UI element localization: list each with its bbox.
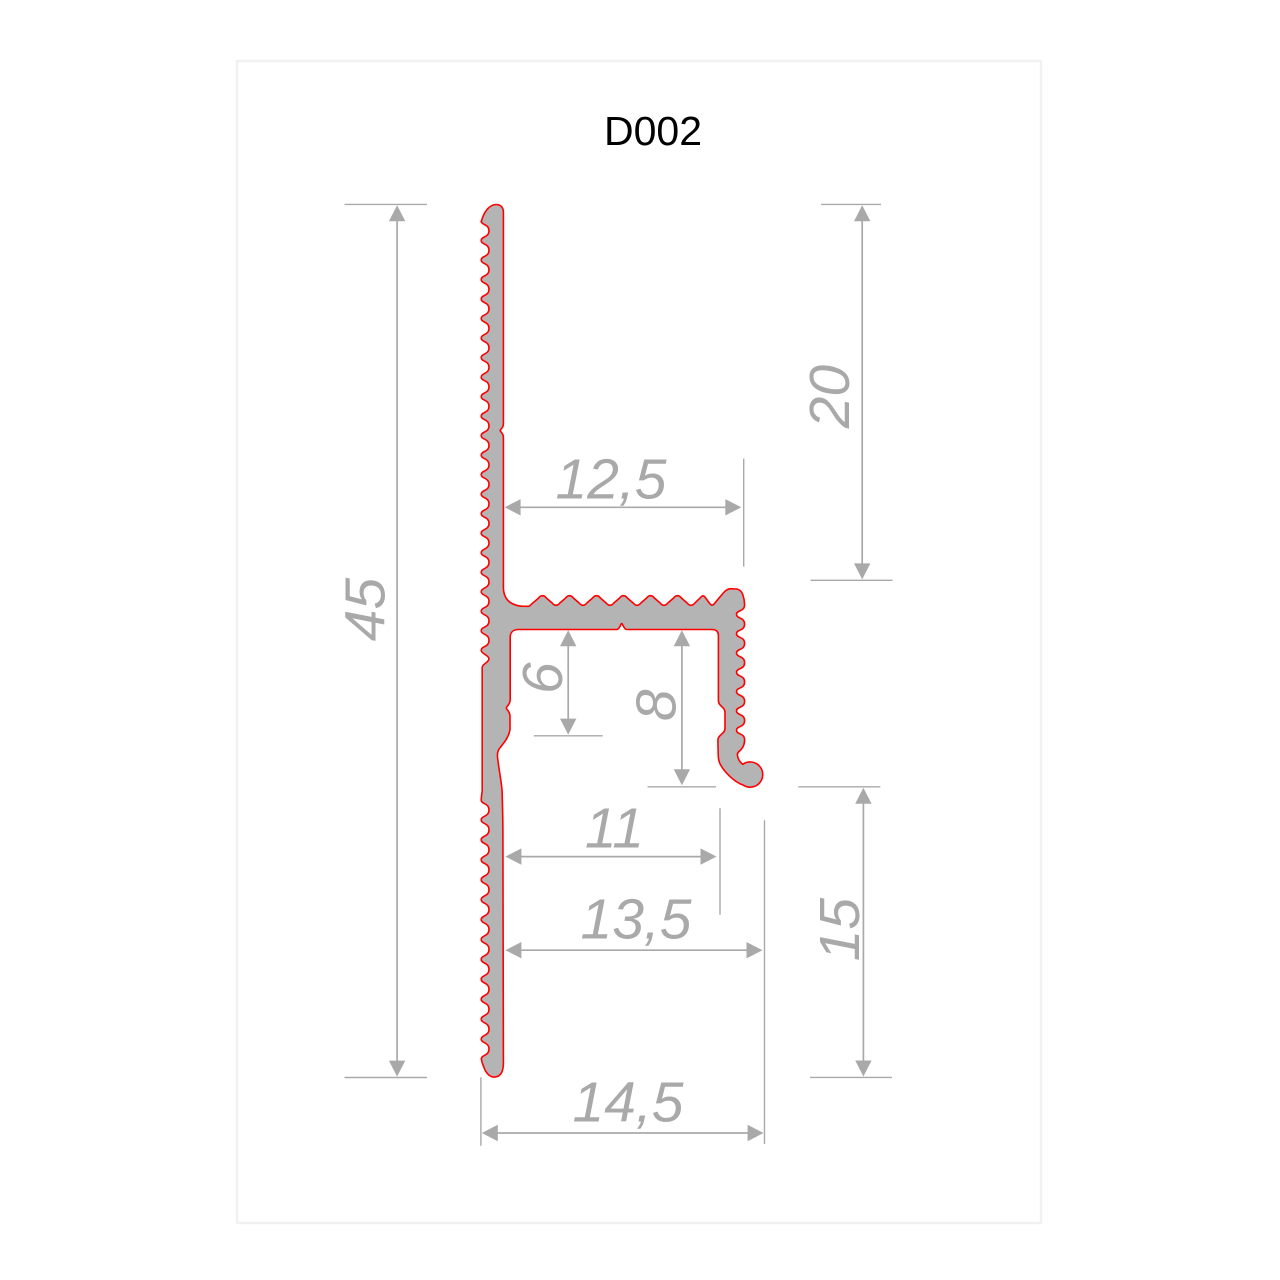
svg-text:6: 6	[511, 662, 575, 694]
svg-text:14,5: 14,5	[573, 1071, 684, 1135]
svg-text:13,5: 13,5	[581, 888, 692, 952]
svg-text:45: 45	[334, 578, 398, 642]
svg-text:D002: D002	[604, 108, 702, 154]
svg-text:8: 8	[624, 689, 688, 721]
svg-text:12,5: 12,5	[556, 448, 667, 512]
svg-text:11: 11	[585, 796, 644, 860]
svg-text:15: 15	[808, 898, 872, 962]
svg-text:20: 20	[798, 365, 862, 430]
